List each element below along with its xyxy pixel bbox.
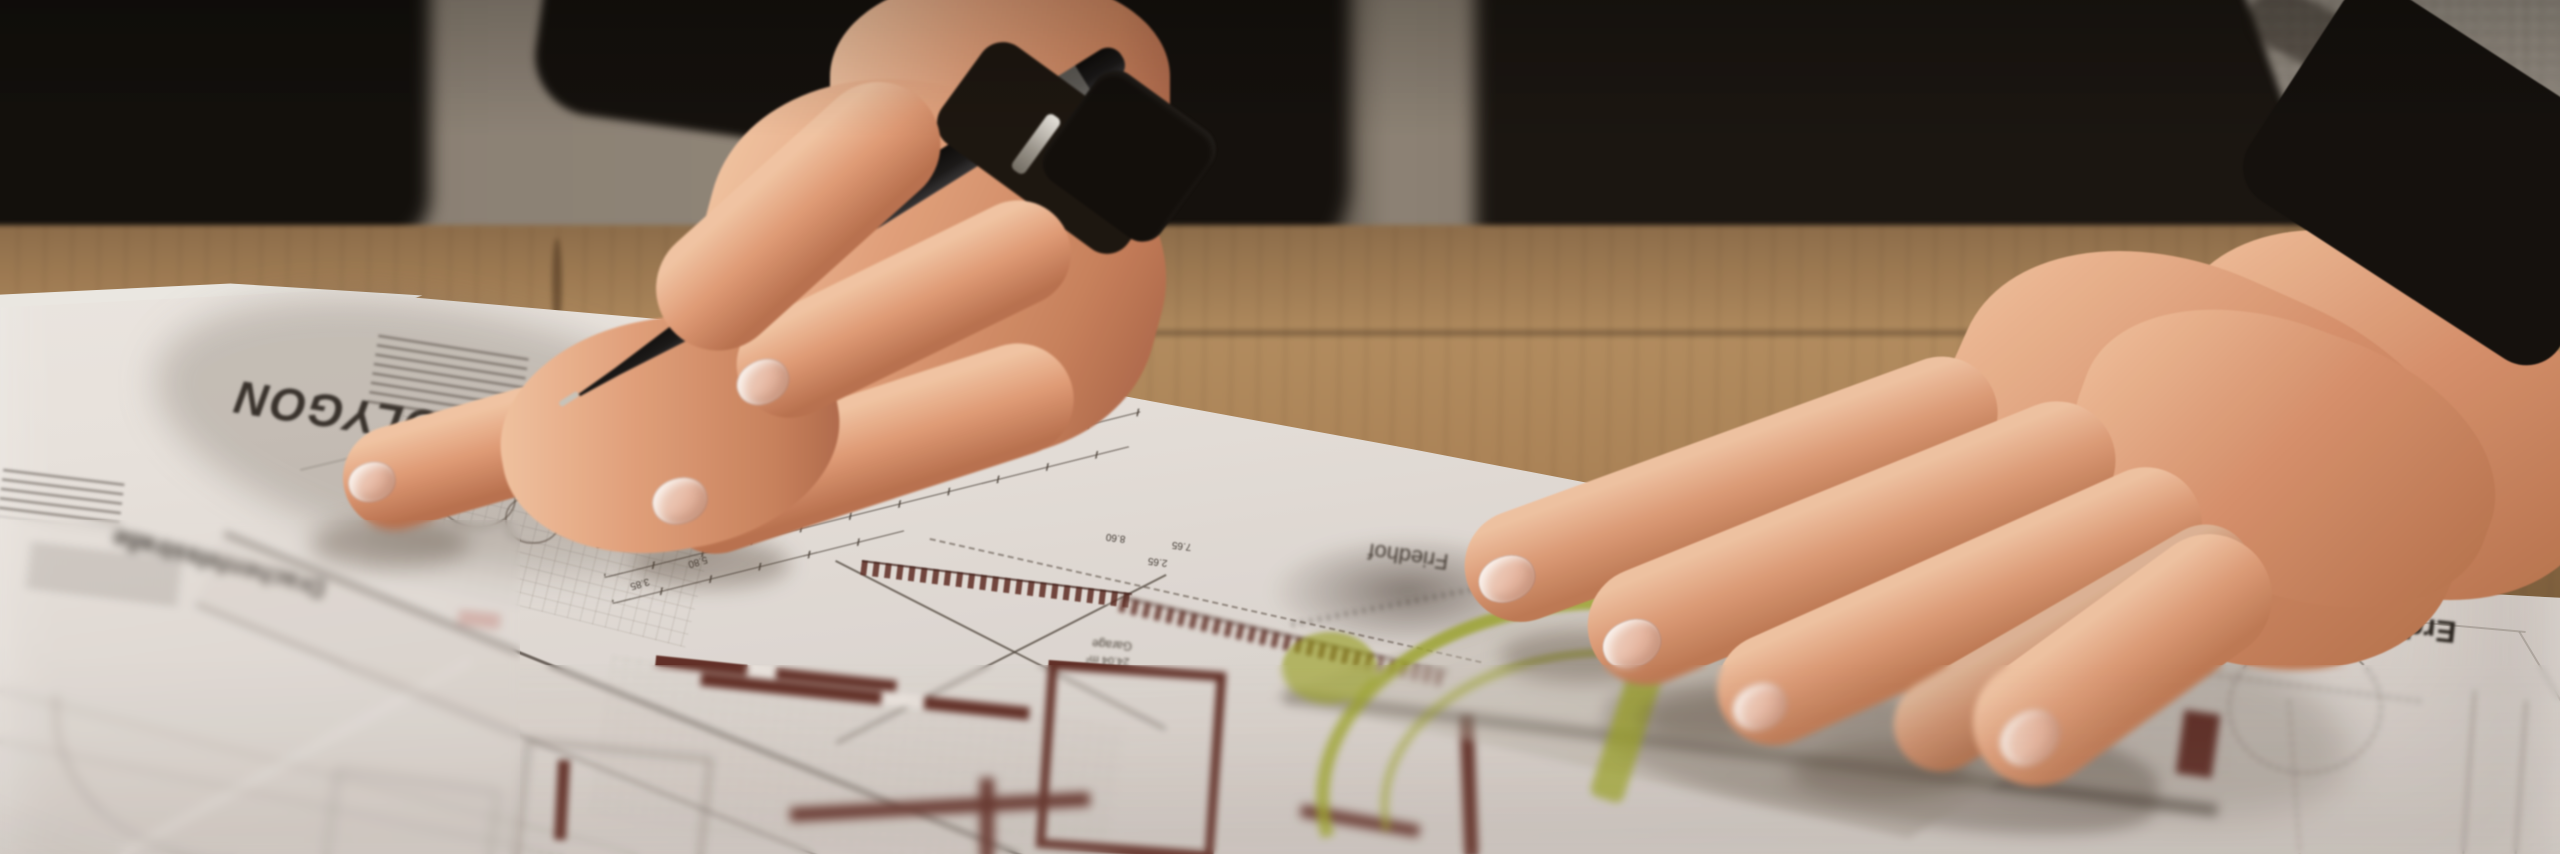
- depth-blur-corner: [0, 520, 520, 854]
- photo-scene: POLYGON Drachenfelsstraße 3.85 5.80 8.60…: [0, 0, 2560, 854]
